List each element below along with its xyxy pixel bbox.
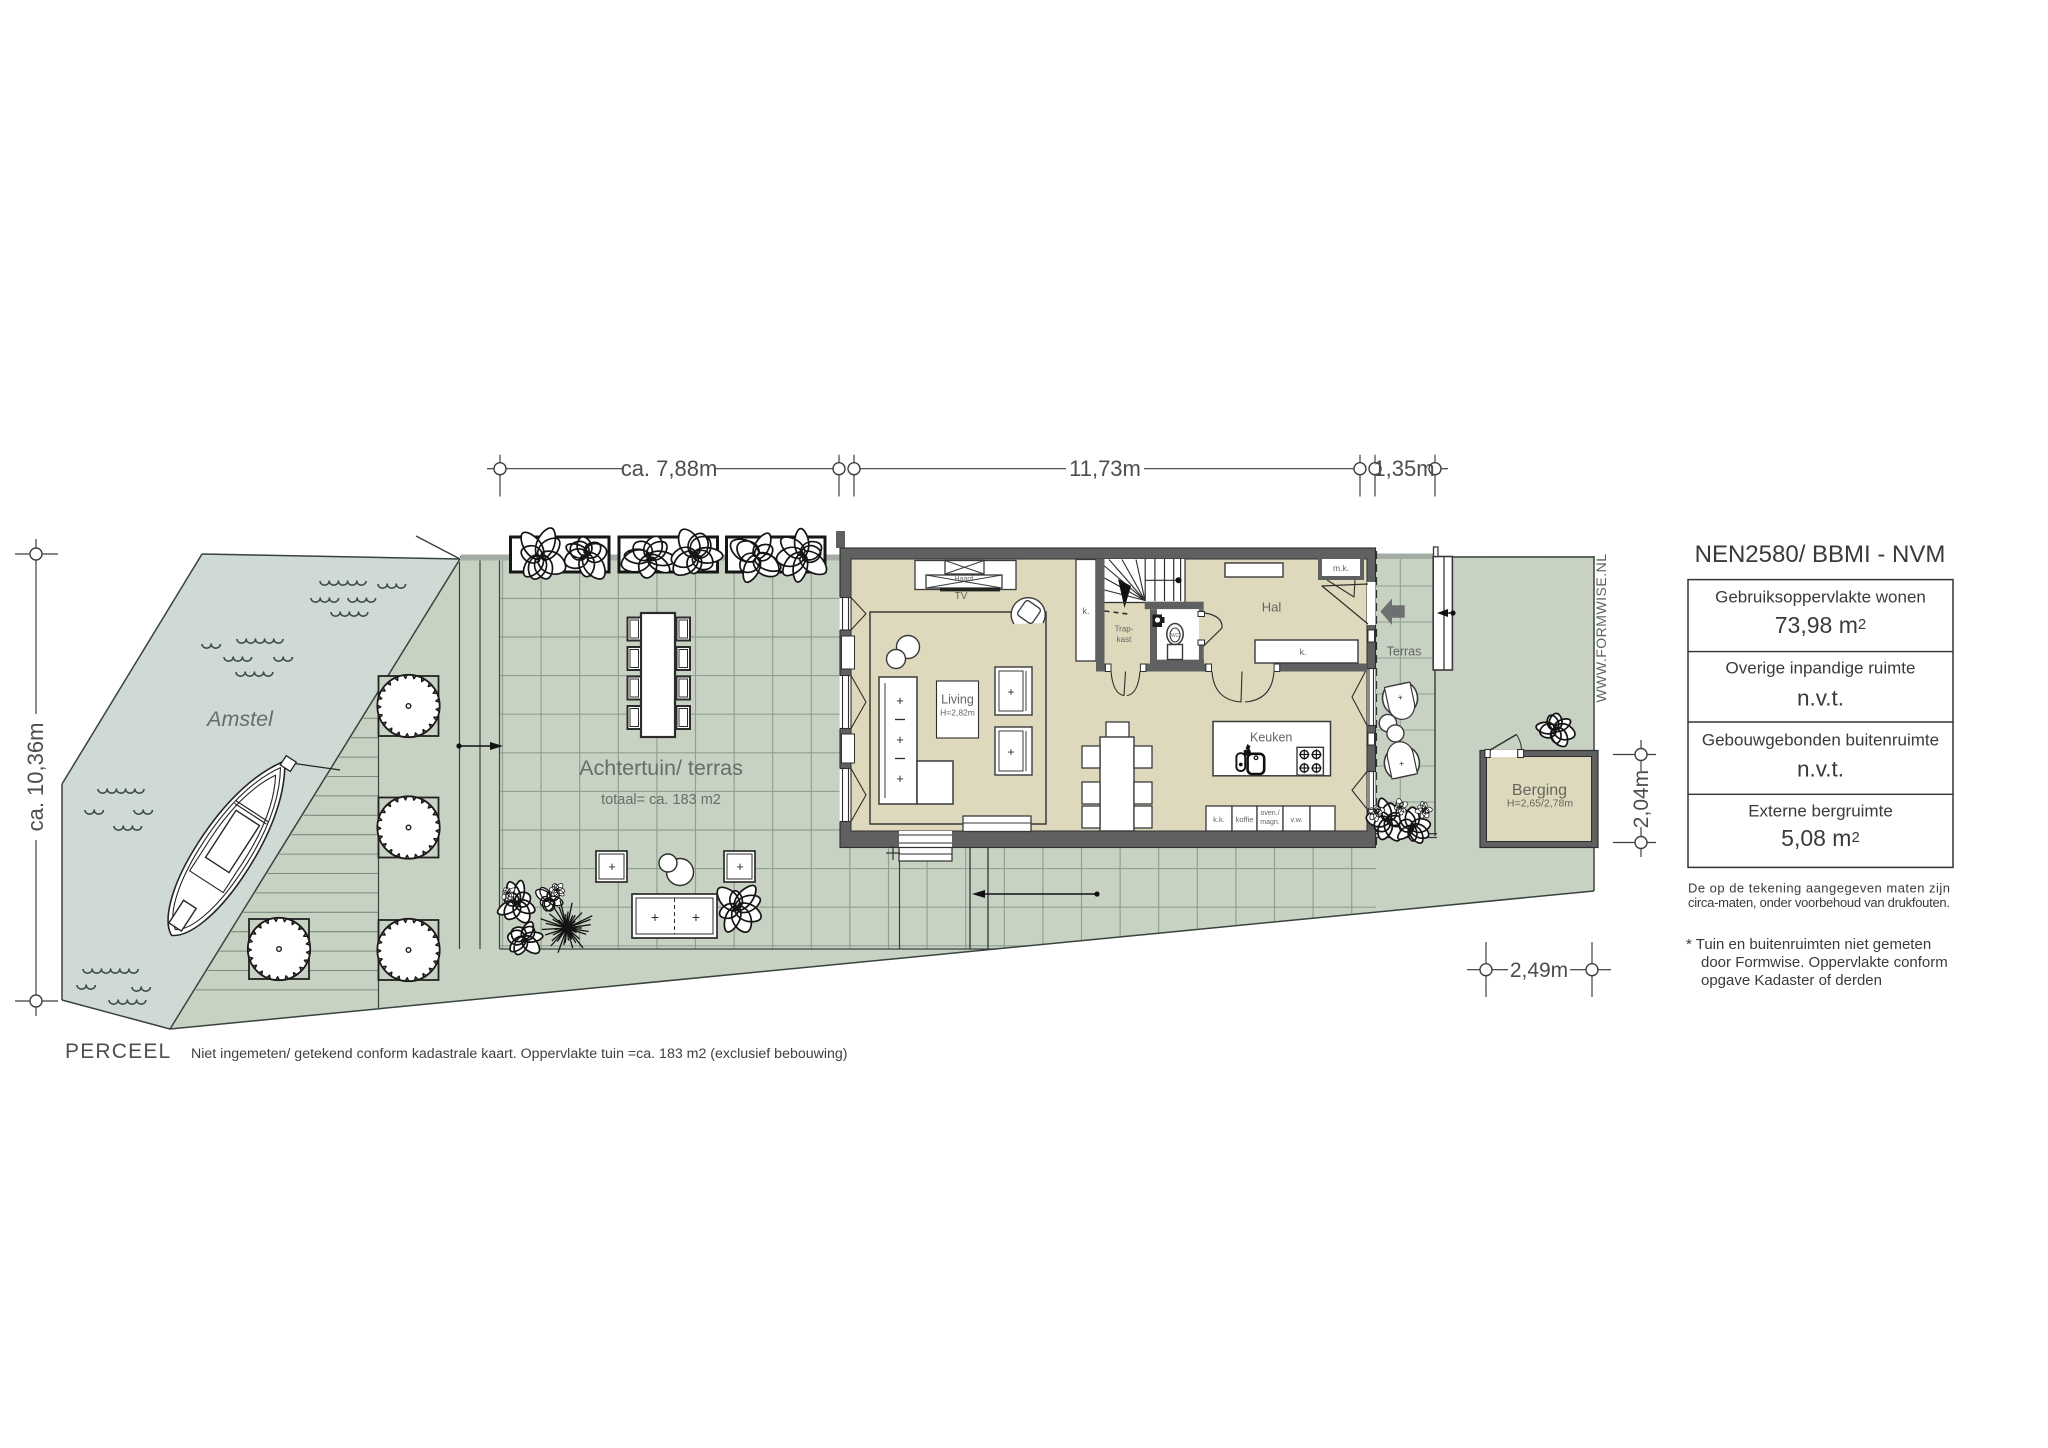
- svg-text:door Formwise. Oppervlakte con: door Formwise. Oppervlakte conform: [1701, 954, 1948, 971]
- svg-text:circa-maten, onder voorbehoud: circa-maten, onder voorbehoud van drukfo…: [1688, 895, 1950, 910]
- svg-text:Niet ingemeten/ getekend confo: Niet ingemeten/ getekend conform kadastr…: [191, 1046, 848, 1062]
- svg-text:kast: kast: [1117, 635, 1132, 644]
- svg-text:Living: Living: [941, 693, 974, 707]
- svg-text:WC: WC: [1171, 633, 1180, 639]
- svg-text:Trap-: Trap-: [1115, 624, 1134, 633]
- svg-text:opgave Kadaster of derden: opgave Kadaster of derden: [1701, 972, 1882, 989]
- svg-text:De op de tekening aangegeven m: De op de tekening aangegeven maten zijn: [1688, 881, 1950, 896]
- svg-text:n.v.t.: n.v.t.: [1797, 686, 1844, 711]
- svg-text:+: +: [896, 693, 904, 708]
- svg-text:+: +: [896, 732, 904, 747]
- svg-text:H=2,65/2,78m: H=2,65/2,78m: [1507, 798, 1574, 810]
- svg-text:Gebruiksoppervlakte wonen: Gebruiksoppervlakte wonen: [1715, 588, 1926, 607]
- svg-text:v.w.: v.w.: [1290, 815, 1302, 824]
- svg-text:5,08 m2: 5,08 m2: [1781, 825, 1860, 851]
- svg-text:+: +: [896, 771, 904, 786]
- svg-text:+: +: [1007, 745, 1014, 759]
- svg-text:Haard: Haard: [954, 576, 973, 583]
- svg-text:totaal= ca. 183 m2: totaal= ca. 183 m2: [601, 792, 721, 808]
- svg-text:+: +: [736, 859, 744, 874]
- svg-text:+: +: [1007, 685, 1014, 699]
- svg-text:Overige inpandige ruimte: Overige inpandige ruimte: [1726, 659, 1916, 678]
- svg-text:WWW.FORMWISE.NL: WWW.FORMWISE.NL: [1593, 553, 1609, 702]
- svg-text:TV: TV: [955, 591, 968, 602]
- svg-text:2,49m: 2,49m: [1510, 959, 1568, 982]
- svg-text:k.k.: k.k.: [1213, 815, 1225, 824]
- svg-text:11,73m: 11,73m: [1069, 456, 1141, 481]
- svg-text:+: +: [692, 909, 700, 925]
- svg-text:* Tuin en buitenruimten niet g: * Tuin en buitenruimten niet gemeten: [1686, 936, 1931, 953]
- svg-text:m.k.: m.k.: [1333, 563, 1349, 573]
- svg-text:Terras: Terras: [1387, 645, 1422, 659]
- svg-text:1,35m: 1,35m: [1373, 456, 1434, 481]
- svg-text:Hal: Hal: [1262, 600, 1282, 615]
- svg-text:Externe bergruimte: Externe bergruimte: [1748, 802, 1893, 821]
- svg-text:PERCEEL: PERCEEL: [65, 1040, 171, 1063]
- svg-text:Keuken: Keuken: [1250, 731, 1292, 745]
- svg-text:n.v.t.: n.v.t.: [1797, 757, 1844, 782]
- svg-text:2,04m: 2,04m: [1630, 770, 1653, 828]
- svg-text:ca. 7,88m: ca. 7,88m: [621, 456, 718, 481]
- svg-text:+: +: [651, 909, 659, 925]
- svg-text:73,98 m2: 73,98 m2: [1775, 612, 1866, 638]
- svg-text:ca. 10,36m: ca. 10,36m: [23, 723, 48, 832]
- svg-text:k.: k.: [1082, 606, 1089, 616]
- svg-text:koffie: koffie: [1236, 815, 1254, 824]
- svg-text:NEN2580/ BBMI - NVM: NEN2580/ BBMI - NVM: [1695, 541, 1946, 568]
- svg-text:Gebouwgebonden buitenruimte: Gebouwgebonden buitenruimte: [1702, 731, 1939, 750]
- svg-text:oven./: oven./: [1260, 810, 1279, 817]
- svg-text:k.: k.: [1299, 647, 1306, 657]
- svg-text:Amstel: Amstel: [205, 707, 274, 731]
- svg-text:Berging: Berging: [1512, 782, 1567, 799]
- svg-text:magn.: magn.: [1260, 819, 1280, 826]
- svg-text:H=2,82m: H=2,82m: [940, 707, 975, 717]
- svg-text:+: +: [608, 859, 616, 874]
- svg-text:Achtertuin/ terras: Achtertuin/ terras: [579, 756, 743, 780]
